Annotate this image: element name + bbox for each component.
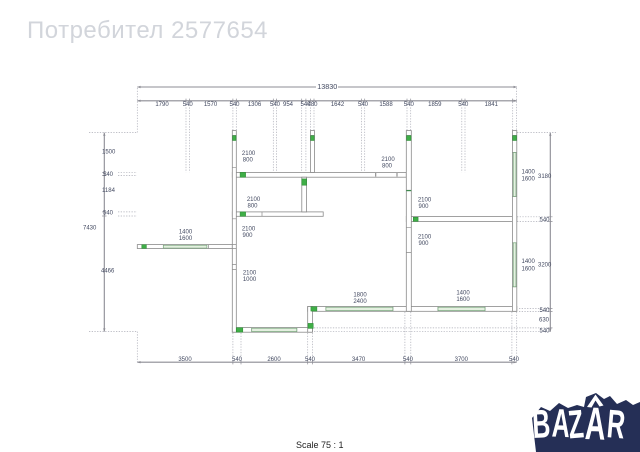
svg-text:2100: 2100 [418, 235, 432, 241]
svg-text:3180: 3180 [538, 174, 552, 180]
svg-text:1306: 1306 [248, 102, 262, 108]
svg-text:1600: 1600 [522, 266, 536, 272]
svg-text:800: 800 [382, 164, 393, 170]
svg-text:3200: 3200 [538, 262, 552, 268]
svg-text:2100: 2100 [242, 151, 256, 157]
svg-text:540: 540 [509, 357, 520, 363]
svg-text:3470: 3470 [352, 357, 366, 363]
svg-text:480: 480 [307, 102, 318, 108]
svg-text:3700: 3700 [455, 357, 469, 363]
svg-text:1570: 1570 [204, 102, 218, 108]
svg-text:7430: 7430 [83, 226, 97, 232]
svg-text:540: 540 [103, 211, 114, 217]
svg-text:1588: 1588 [379, 102, 393, 108]
svg-text:540: 540 [540, 217, 551, 223]
svg-text:1841: 1841 [485, 102, 499, 108]
svg-text:630: 630 [539, 318, 550, 324]
svg-text:540: 540 [270, 102, 281, 108]
svg-text:540: 540 [305, 357, 316, 363]
svg-text:1790: 1790 [155, 102, 169, 108]
svg-text:Scale 75 : 1: Scale 75 : 1 [296, 440, 344, 450]
svg-text:540: 540 [540, 308, 551, 314]
svg-text:B: B [531, 402, 551, 447]
svg-text:1400: 1400 [179, 230, 193, 236]
svg-text:1000: 1000 [243, 277, 257, 283]
svg-text:A: A [584, 398, 606, 450]
svg-text:800: 800 [243, 158, 254, 164]
svg-text:3500: 3500 [178, 357, 192, 363]
svg-text:1600: 1600 [179, 236, 193, 242]
svg-text:2100: 2100 [418, 198, 432, 204]
svg-text:1642: 1642 [331, 102, 345, 108]
svg-text:540: 540 [540, 328, 551, 334]
svg-text:1500: 1500 [102, 150, 116, 156]
svg-text:1859: 1859 [428, 102, 442, 108]
svg-text:Потребител 2577654: Потребител 2577654 [27, 17, 268, 44]
svg-text:954: 954 [283, 102, 294, 108]
svg-text:1184: 1184 [102, 188, 116, 194]
svg-text:2100: 2100 [381, 157, 395, 163]
svg-text:1400: 1400 [522, 169, 536, 175]
svg-text:900: 900 [418, 204, 429, 210]
svg-text:1400: 1400 [456, 291, 470, 297]
svg-text:1600: 1600 [456, 297, 470, 303]
svg-text:800: 800 [247, 204, 258, 210]
svg-text:540: 540 [458, 102, 469, 108]
svg-text:540: 540 [403, 357, 414, 363]
svg-text:2100: 2100 [242, 227, 256, 233]
svg-text:540: 540 [183, 102, 194, 108]
svg-text:900: 900 [242, 233, 253, 239]
svg-text:4466: 4466 [101, 268, 115, 274]
svg-text:2600: 2600 [267, 357, 281, 363]
svg-text:900: 900 [418, 241, 429, 247]
svg-text:2400: 2400 [353, 299, 367, 305]
svg-text:540: 540 [232, 357, 243, 363]
svg-text:2100: 2100 [243, 271, 257, 277]
svg-text:1800: 1800 [353, 293, 367, 299]
svg-text:1600: 1600 [522, 176, 536, 182]
svg-text:1400: 1400 [522, 259, 536, 265]
svg-text:540: 540 [358, 102, 369, 108]
svg-text:540: 540 [404, 102, 415, 108]
svg-text:540: 540 [103, 172, 114, 178]
svg-text:540: 540 [229, 102, 240, 108]
svg-text:2100: 2100 [247, 197, 261, 203]
svg-text:13830: 13830 [317, 82, 337, 91]
